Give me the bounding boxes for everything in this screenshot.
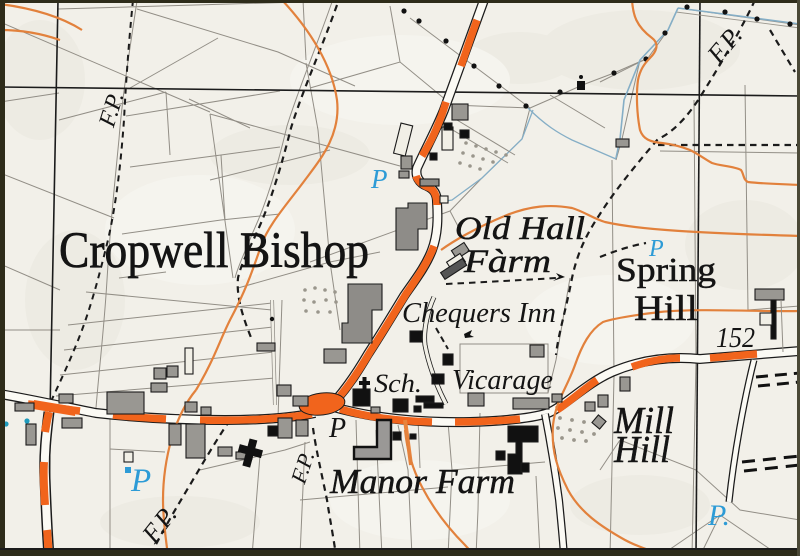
svg-text:Hill: Hill — [613, 429, 670, 471]
svg-text:P.: P. — [707, 499, 730, 532]
svg-text:Cropwell Bishop: Cropwell Bishop — [59, 223, 369, 279]
svg-text:P: P — [370, 164, 388, 194]
svg-text:P: P — [130, 463, 151, 499]
svg-text:Fàrm: Fàrm — [463, 244, 551, 280]
svg-text:Manor Farm: Manor Farm — [329, 462, 515, 501]
svg-text:Old Hall: Old Hall — [455, 211, 585, 247]
svg-text:Hill: Hill — [634, 288, 698, 328]
svg-text:Vicarage: Vicarage — [452, 364, 553, 396]
svg-text:Chequers Inn: Chequers Inn — [402, 298, 556, 329]
svg-text:152: 152 — [716, 322, 755, 354]
svg-text:Spring: Spring — [616, 252, 716, 289]
svg-text:Sch.: Sch. — [374, 369, 422, 398]
svg-text:P: P — [328, 413, 346, 444]
svg-text:P: P — [648, 236, 664, 262]
